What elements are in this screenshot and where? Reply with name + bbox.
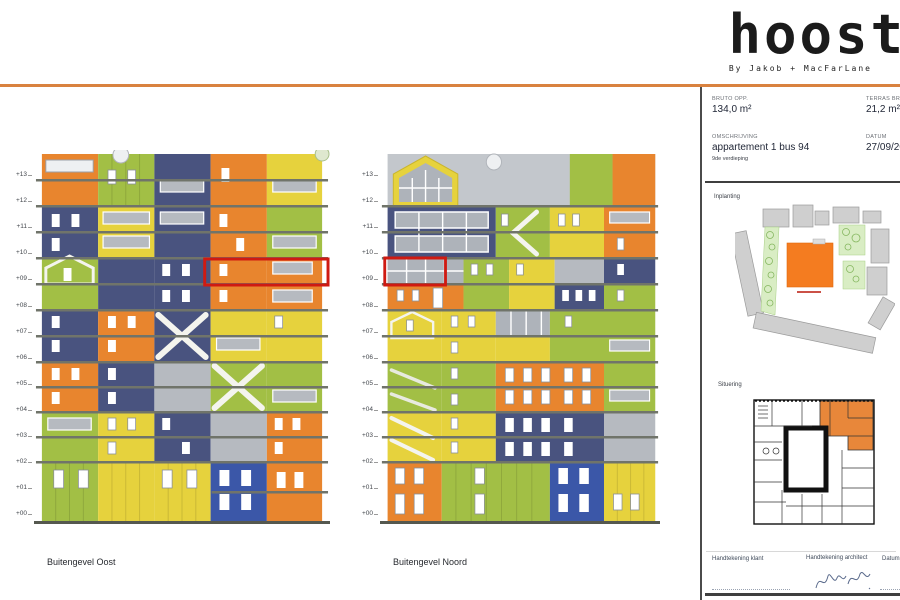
- floor-label: +08: [362, 303, 378, 310]
- terras-label: TERRAS BRUT: [866, 96, 900, 102]
- floor-label: +03: [362, 433, 378, 440]
- key-floor-plan-drawing: [752, 398, 876, 526]
- floor-label: +02: [362, 459, 378, 466]
- floor-labels-noord: +13+12+11+10+09+08+07+06+05+04+03+02+01+…: [354, 172, 378, 518]
- plan-courtyard: [786, 428, 826, 490]
- titleblock-bottom-rule: [705, 593, 900, 596]
- inplanting-label: Inplanting: [714, 194, 740, 200]
- caption-buitengevel-noord: Buitengevel Noord: [393, 557, 467, 567]
- site-plan-drawing: [735, 203, 895, 355]
- floor-label: +10: [362, 250, 378, 257]
- floor-label: +13: [16, 172, 32, 179]
- floor-label: +09: [362, 276, 378, 283]
- titleblock-divider: [700, 87, 702, 600]
- logo-byline: By Jakob + MacFarLane: [729, 64, 872, 73]
- floor-label: +07: [16, 329, 32, 336]
- datum-label: DATUM: [866, 134, 887, 140]
- datum-value: 27/09/20: [866, 142, 900, 153]
- floor-label: +05: [16, 381, 32, 388]
- caption-buitengevel-oost: Buitengevel Oost: [47, 557, 116, 567]
- verdieping-sub-label: 9de verdieping: [712, 156, 748, 162]
- bruto-opp-label: BRUTO OPP.: [712, 96, 748, 102]
- floor-label: +02: [16, 459, 32, 466]
- floor-label: +11: [16, 224, 32, 231]
- floor-label: +08: [16, 303, 32, 310]
- signature-klant-label: Handtekening klant: [712, 556, 763, 562]
- signature-datum-label: Datum: [882, 556, 900, 562]
- titleblock-rule: [705, 181, 900, 183]
- elevation-noord-drawing: [380, 150, 660, 530]
- bruto-opp-value: 134,0 m²: [712, 104, 751, 115]
- elevation-oost-drawing: [34, 150, 330, 530]
- hoost-logo: hoost: [728, 8, 900, 62]
- floor-label: +09: [16, 276, 32, 283]
- terras-value: 21,2 m²: [866, 104, 900, 115]
- site-project-footprint: [787, 243, 833, 287]
- site-annex: [813, 239, 825, 244]
- floor-label: +06: [362, 355, 378, 362]
- omschrijving-label: OMSCHRIJVING: [712, 134, 758, 140]
- tree-sketch: [113, 150, 129, 163]
- floor-label: +10: [16, 250, 32, 257]
- floor-label: +07: [362, 329, 378, 336]
- situering-label: Situering: [718, 382, 742, 388]
- floor-label: +13: [362, 172, 378, 179]
- floor-label: +12: [16, 198, 32, 205]
- signature-architect-label: Handtekening architect: [806, 555, 867, 561]
- floor-labels-oost: +13+12+11+10+09+08+07+06+05+04+03+02+01+…: [8, 172, 32, 518]
- floor-label: +06: [16, 355, 32, 362]
- site-caption-mark: [797, 291, 821, 293]
- floor-label: +01: [362, 485, 378, 492]
- floor-label: +03: [16, 433, 32, 440]
- floor-label: +04: [362, 407, 378, 414]
- orange-rule: [0, 84, 900, 87]
- signature-line-klant: [712, 588, 790, 590]
- floor-label: +01: [16, 485, 32, 492]
- architect-signature: [810, 568, 874, 594]
- floor-label: +12: [362, 198, 378, 205]
- floor-label: +11: [362, 224, 378, 231]
- floor-label: +05: [362, 381, 378, 388]
- drawing-sheet: hoost By Jakob + MacFarLane +13+12+11+10…: [0, 0, 900, 600]
- floor-label: +00: [362, 511, 378, 518]
- signature-rule: [706, 551, 896, 552]
- tree-sketch: [315, 150, 329, 161]
- omschrijving-value: appartement 1 bus 94: [712, 142, 809, 153]
- floor-label: +00: [16, 511, 32, 518]
- signature-line-datum: [880, 588, 900, 590]
- tree-sketch: [486, 154, 501, 170]
- floor-label: +04: [16, 407, 32, 414]
